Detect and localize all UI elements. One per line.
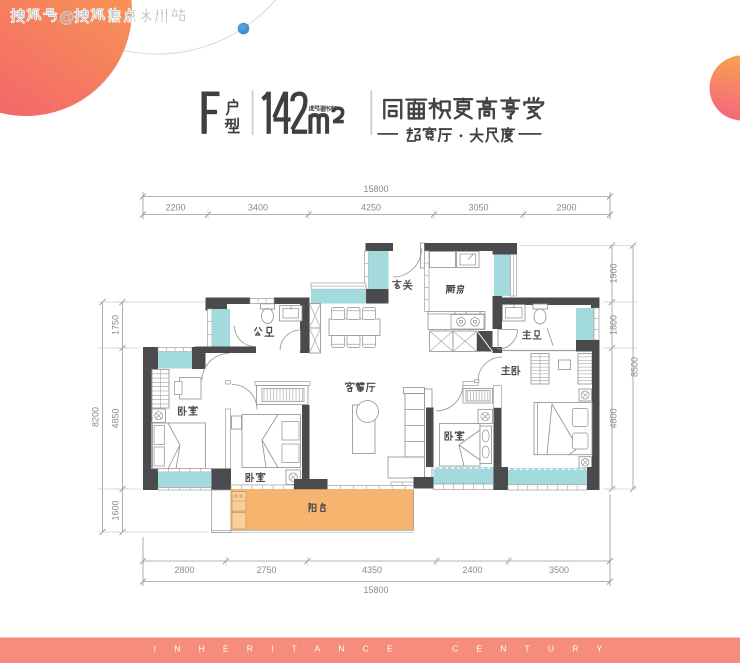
svg-text:8500: 8500 [630,357,640,377]
svg-text:3050: 3050 [468,203,488,213]
svg-text:15800: 15800 [363,184,388,194]
svg-text:4850: 4850 [111,408,121,428]
svg-text:INHERITANCE CENTURY: INHERITANCE CENTURY [154,644,621,654]
svg-text:2800: 2800 [174,565,194,575]
svg-text:1900: 1900 [609,263,619,283]
svg-text:1750: 1750 [111,315,121,335]
svg-text:3500: 3500 [549,565,569,575]
svg-text:2200: 2200 [165,203,185,213]
svg-text:2750: 2750 [256,565,276,575]
svg-text:8200: 8200 [91,407,101,427]
svg-text:3400: 3400 [248,203,268,213]
svg-text:4800: 4800 [609,408,619,428]
svg-text:1600: 1600 [111,500,121,520]
svg-text:2900: 2900 [556,203,576,213]
svg-text:15800: 15800 [363,585,388,595]
svg-text:@: @ [59,10,75,27]
svg-text:4250: 4250 [361,203,381,213]
svg-text:2400: 2400 [462,565,482,575]
svg-text:1800: 1800 [609,315,619,335]
svg-text:4350: 4350 [362,565,382,575]
